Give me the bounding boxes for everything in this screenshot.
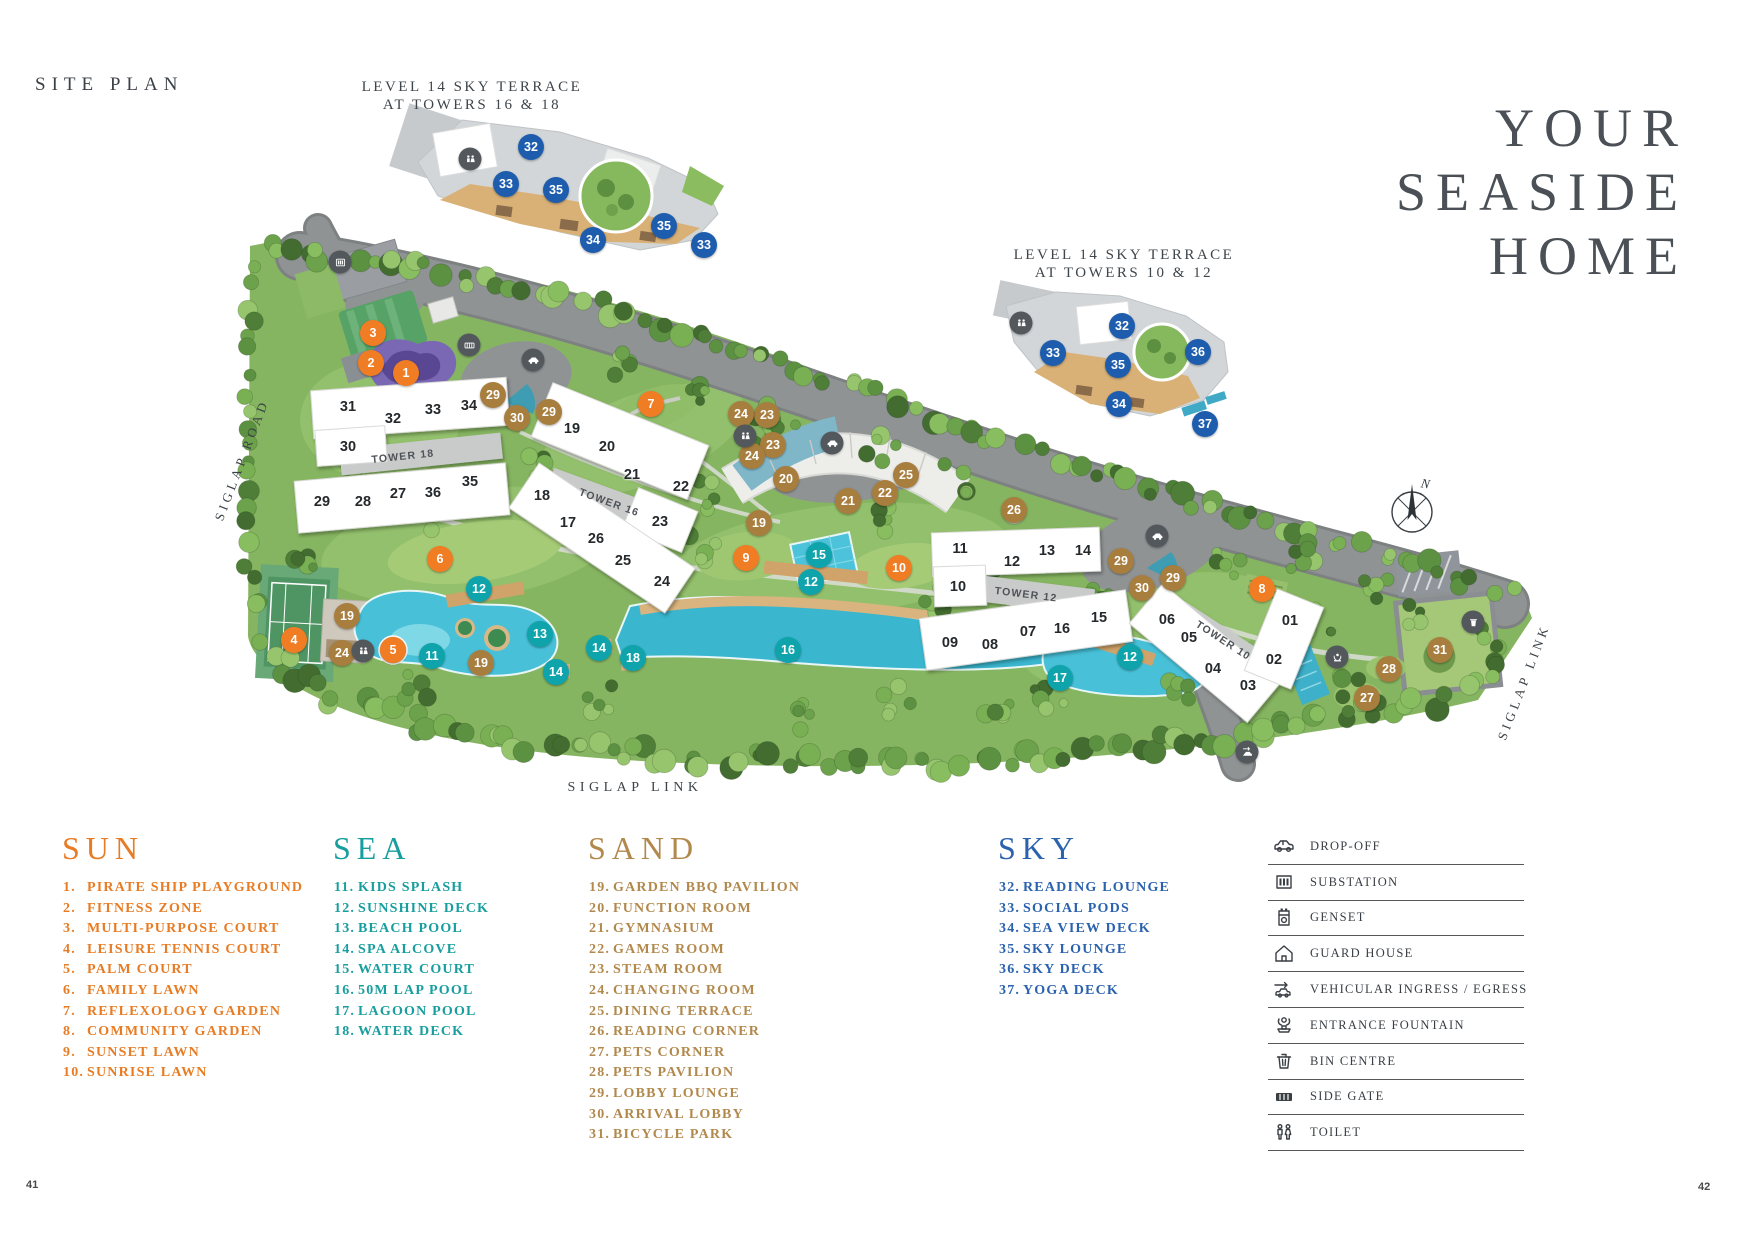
map-marker-1: 1 [393,360,419,386]
unit-number-14: 14 [1075,544,1091,559]
map-marker-6: 6 [427,546,453,572]
unit-number-03: 03 [1240,679,1256,694]
map-marker-28: 28 [1376,656,1402,682]
site-plan-page: 1234567891011121212131414151617181919192… [0,0,1744,1240]
toilet-map-icon [459,148,482,171]
legend-item-26: 26.READING CORNER [589,1022,800,1043]
bin-centre-icon [1272,1049,1296,1073]
unit-number-07: 07 [1020,625,1036,640]
legend-row-bin-centre: BIN CENTRE [1268,1044,1524,1080]
drop-off-map-icon [821,432,844,455]
map-marker-29: 29 [1108,548,1134,574]
legend-label: TOILET [1310,1125,1361,1140]
map-marker-10: 10 [886,555,912,581]
legend-item-32: 32.READING LOUNGE [999,878,1170,899]
map-marker-30: 30 [1129,575,1155,601]
unit-number-22: 22 [673,480,689,495]
page-number-left: 41 [26,1180,38,1191]
legend-row-substation: SUBSTATION [1268,865,1524,901]
legend-item-3: 3.MULTI-PURPOSE COURT [63,919,303,940]
unit-number-20: 20 [599,440,615,455]
legend-label: GENSET [1310,910,1366,925]
legend-column-sea: SEA 11.KIDS SPLASH12.SUNSHINE DECK13.BEA… [333,832,411,864]
map-marker-12: 12 [1117,644,1143,670]
legend-row-drop-off: DROP-OFF [1268,829,1524,865]
unit-number-25: 25 [615,554,631,569]
unit-number-16: 16 [1054,622,1070,637]
legend-label: SUBSTATION [1310,875,1398,890]
map-marker-7: 7 [638,391,664,417]
tower-label-tower-16: TOWER 16 [578,487,641,518]
inset2-title-line2: AT TOWERS 10 & 12 [1014,264,1235,282]
unit-number-23: 23 [652,515,668,530]
map-marker-5: 5 [380,637,406,663]
legend-item-17: 17.LAGOON POOL [334,1002,489,1023]
unit-number-35: 35 [462,475,478,490]
unit-number-21: 21 [624,468,640,483]
entrance-fountain-map-icon [1326,646,1349,669]
legend-row-toilet: TOILET [1268,1115,1524,1151]
unit-number-17: 17 [560,516,576,531]
inset2-title: LEVEL 14 SKY TERRACE AT TOWERS 10 & 12 [1014,246,1235,282]
legend-item-8: 8.COMMUNITY GARDEN [63,1022,303,1043]
legend-label: SIDE GATE [1310,1089,1385,1104]
unit-number-26: 26 [588,532,604,547]
legend-item-19: 19.GARDEN BBQ PAVILION [589,878,800,899]
icon-legend: DROP-OFF SUBSTATION GENSET GU [1268,829,1524,1151]
legend-item-24: 24.CHANGING ROOM [589,981,800,1002]
map-marker-32: 32 [518,134,544,160]
map-marker-34: 34 [580,227,606,253]
map-marker-12: 12 [798,569,824,595]
map-marker-36: 36 [1185,339,1211,365]
map-marker-26: 26 [1001,497,1027,523]
legend-item-2: 2.FITNESS ZONE [63,899,303,920]
legend-label: VEHICULAR INGRESS / EGRESS [1310,982,1528,997]
map-marker-2: 2 [358,350,384,376]
unit-number-36: 36 [425,486,441,501]
legend-row-guard-house: GUARD HOUSE [1268,936,1524,972]
legend-column-sand: SAND 19.GARDEN BBQ PAVILION20.FUNCTION R… [588,832,699,864]
map-marker-33: 33 [1040,340,1066,366]
toilet-map-icon [352,640,375,663]
hero-tagline: YOUR SEASIDE HOME [1396,96,1688,288]
legend-item-33: 33.SOCIAL PODS [999,899,1170,920]
legend-item-5: 5.PALM COURT [63,960,303,981]
unit-number-11: 11 [952,542,967,557]
map-marker-29: 29 [480,382,506,408]
vehicular-map-icon [1236,741,1259,764]
legend-item-20: 20.FUNCTION ROOM [589,899,800,920]
map-marker-27: 27 [1354,685,1380,711]
map-marker-12: 12 [466,576,492,602]
map-marker-29: 29 [536,399,562,425]
map-marker-25: 25 [893,462,919,488]
substation-icon [1272,870,1296,894]
map-marker-19: 19 [746,510,772,536]
map-marker-13: 13 [527,621,553,647]
map-marker-19: 19 [468,650,494,676]
legend-item-18: 18.WATER DECK [334,1022,489,1043]
unit-number-13: 13 [1039,544,1055,559]
unit-number-08: 08 [982,638,998,653]
drop-off-icon [1272,834,1296,858]
genset-icon [1272,906,1296,930]
unit-number-32: 32 [385,412,401,427]
unit-number-29: 29 [314,495,330,510]
legend-item-37: 37.YOGA DECK [999,981,1170,1002]
map-marker-4: 4 [281,627,307,653]
legend-item-16: 16.50M LAP POOL [334,981,489,1002]
legend-row-vehicular: VEHICULAR INGRESS / EGRESS [1268,972,1524,1008]
inset1-title: LEVEL 14 SKY TERRACE AT TOWERS 16 & 18 [362,78,583,114]
legend-item-27: 27.PETS CORNER [589,1043,800,1064]
unit-number-10: 10 [950,580,966,595]
map-marker-14: 14 [586,635,612,661]
inset1-title-line2: AT TOWERS 16 & 18 [362,96,583,114]
legend-label: DROP-OFF [1310,839,1381,854]
page-title: SITE PLAN [35,74,183,96]
road-label-siglap-link-bottom: SIGLAP LINK [568,780,703,796]
hero-line-1: YOUR [1396,96,1688,160]
map-marker-32: 32 [1109,313,1135,339]
map-marker-30: 30 [504,405,530,431]
map-marker-35: 35 [651,213,677,239]
map-marker-24: 24 [728,401,754,427]
unit-number-05: 05 [1181,631,1197,646]
side-gate-map-icon [458,334,481,357]
map-marker-35: 35 [1105,352,1131,378]
legend-column-sky: SKY 32.READING LOUNGE33.SOCIAL PODS34.SE… [998,832,1080,864]
map-marker-29: 29 [1160,565,1186,591]
legend-item-11: 11.KIDS SPLASH [334,878,489,899]
toilet-icon [1272,1121,1296,1145]
unit-number-24: 24 [654,575,670,590]
unit-number-06: 06 [1159,613,1175,628]
legend-item-30: 30.ARRIVAL LOBBY [589,1105,800,1126]
map-marker-18: 18 [620,645,646,671]
legend-row-side-gate: SIDE GATE [1268,1080,1524,1116]
legend-item-25: 25.DINING TERRACE [589,1002,800,1023]
legend-sky-title: SKY [998,832,1080,864]
toilet-map-icon [734,425,757,448]
inset1-title-line1: LEVEL 14 SKY TERRACE [362,78,583,96]
legend-label: GUARD HOUSE [1310,946,1414,961]
map-marker-33: 33 [493,171,519,197]
legend-label: BIN CENTRE [1310,1054,1396,1069]
map-marker-9: 9 [733,545,759,571]
inset2-title-line1: LEVEL 14 SKY TERRACE [1014,246,1235,264]
unit-number-31: 31 [340,400,356,415]
unit-number-04: 04 [1205,662,1221,677]
legend-item-21: 21.GYMNASIUM [589,919,800,940]
legend-sun-items: 1.PIRATE SHIP PLAYGROUND2.FITNESS ZONE3.… [63,878,303,1084]
legend-item-7: 7.REFLEXOLOGY GARDEN [63,1002,303,1023]
map-marker-22: 22 [872,480,898,506]
legend-column-sun: SUN 1.PIRATE SHIP PLAYGROUND2.FITNESS ZO… [62,832,144,864]
substation-map-icon [329,251,352,274]
drop-off-map-icon [522,349,545,372]
legend-label: ENTRANCE FOUNTAIN [1310,1018,1465,1033]
bin-centre-map-icon [1462,611,1485,634]
map-marker-31: 31 [1427,637,1453,663]
unit-number-18: 18 [534,489,550,504]
map-marker-23: 23 [754,402,780,428]
legend-item-12: 12.SUNSHINE DECK [334,899,489,920]
legend-sand-title: SAND [588,832,699,864]
map-marker-34: 34 [1106,391,1132,417]
unit-number-15: 15 [1091,611,1107,626]
map-marker-17: 17 [1047,665,1073,691]
map-marker-21: 21 [835,488,861,514]
legend-item-36: 36.SKY DECK [999,960,1170,981]
hero-line-3: HOME [1396,224,1688,288]
hero-line-2: SEASIDE [1396,160,1688,224]
unit-number-34: 34 [461,399,477,414]
tower-label-tower-10: TOWER 10 [1194,619,1253,662]
unit-number-12: 12 [1004,555,1020,570]
legend-item-13: 13.BEACH POOL [334,919,489,940]
legend-item-34: 34.SEA VIEW DECK [999,919,1170,940]
side-gate-icon [1272,1085,1296,1109]
legend-item-6: 6.FAMILY LAWN [63,981,303,1002]
legend-sun-title: SUN [62,832,144,864]
unit-number-19: 19 [564,422,580,437]
legend-item-4: 4.LEISURE TENNIS COURT [63,940,303,961]
unit-number-30: 30 [340,440,356,455]
legend-item-31: 31.BICYCLE PARK [589,1125,800,1146]
legend-item-28: 28.PETS PAVILION [589,1063,800,1084]
legend-row-genset: GENSET [1268,901,1524,937]
legend-item-1: 1.PIRATE SHIP PLAYGROUND [63,878,303,899]
legend-sea-items: 11.KIDS SPLASH12.SUNSHINE DECK13.BEACH P… [334,878,489,1043]
legend-item-15: 15.WATER COURT [334,960,489,981]
unit-number-02: 02 [1266,653,1282,668]
unit-number-09: 09 [942,636,958,651]
map-marker-3: 3 [360,320,386,346]
legend-sand-items: 19.GARDEN BBQ PAVILION20.FUNCTION ROOM21… [589,878,800,1146]
legend-item-10: 10.SUNRISE LAWN [63,1063,303,1084]
map-marker-19: 19 [334,603,360,629]
legend-item-35: 35.SKY LOUNGE [999,940,1170,961]
legend-sky-items: 32.READING LOUNGE33.SOCIAL PODS34.SEA VI… [999,878,1170,1002]
guard-house-icon [1272,942,1296,966]
tower-label-tower-12: TOWER 12 [994,586,1058,604]
map-marker-35: 35 [543,177,569,203]
map-marker-16: 16 [775,637,801,663]
legend-item-29: 29.LOBBY LOUNGE [589,1084,800,1105]
drop-off-map-icon [1146,525,1169,548]
legend-sea-title: SEA [333,832,411,864]
map-marker-20: 20 [773,466,799,492]
legend-item-23: 23.STEAM ROOM [589,960,800,981]
vehicular-ingress-egress-icon [1272,978,1296,1002]
map-marker-11: 11 [419,643,445,669]
map-marker-33: 33 [691,232,717,258]
map-marker-15: 15 [806,542,832,568]
entrance-fountain-icon [1272,1013,1296,1037]
unit-number-01: 01 [1282,614,1298,629]
unit-number-27: 27 [390,487,406,502]
map-marker-14: 14 [543,659,569,685]
legend-row-entrance-fountain: ENTRANCE FOUNTAIN [1268,1008,1524,1044]
map-marker-37: 37 [1192,411,1218,437]
unit-number-28: 28 [355,495,371,510]
page-number-right: 42 [1698,1182,1710,1193]
legend-item-22: 22.GAMES ROOM [589,940,800,961]
unit-number-33: 33 [425,403,441,418]
legend-item-9: 9.SUNSET LAWN [63,1043,303,1064]
toilet-map-icon [1010,312,1033,335]
map-marker-8: 8 [1249,576,1275,602]
tower-label-tower-18: TOWER 18 [371,448,435,465]
legend-item-14: 14.SPA ALCOVE [334,940,489,961]
